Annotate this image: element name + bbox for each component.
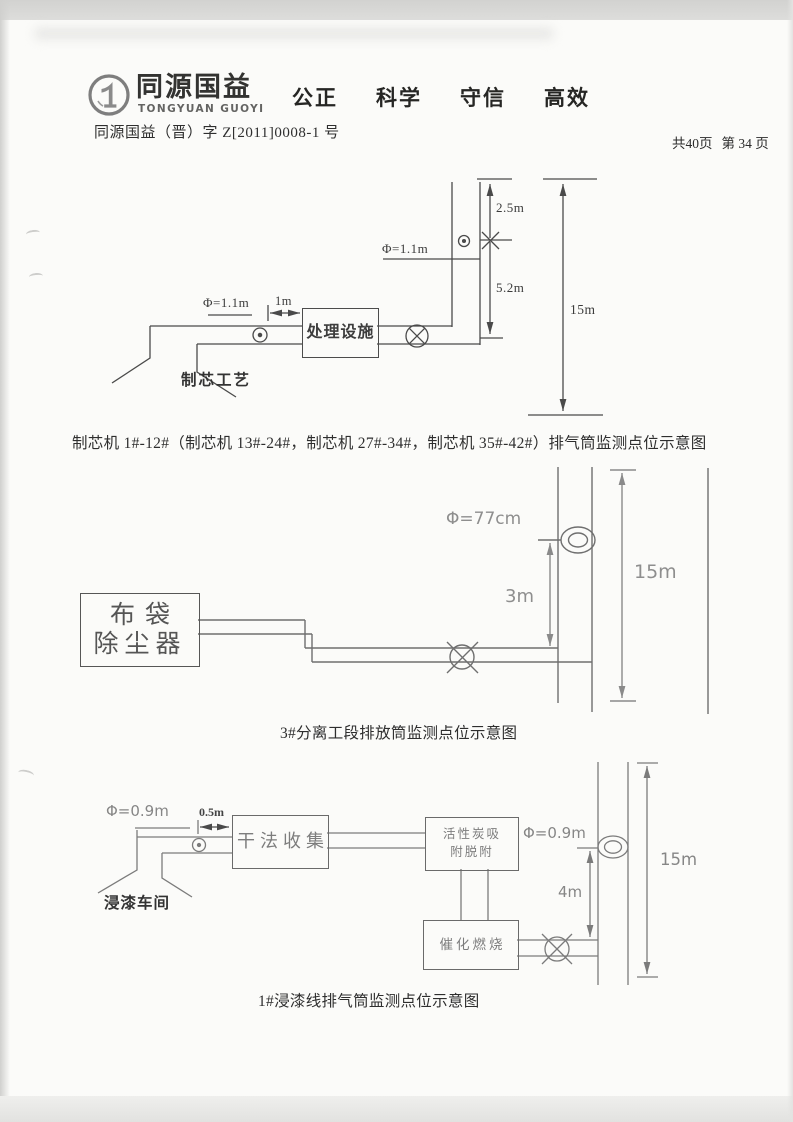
d3-source-hood [98,830,192,897]
dry-collection-box: 干法收集 [232,815,329,869]
d1-lower-height-label: 5.2m [496,281,524,295]
catalytic-combustion-label: 催化燃烧 [437,938,506,953]
treatment-facility-label: 处理设施 [306,324,374,342]
d2-lines [198,467,708,714]
d2-dimension-lines [550,470,636,701]
d1-stack-diameter-label: Φ=1.1m [382,242,428,256]
d1-source-label: 制芯工艺 [181,372,251,389]
d1-stack [452,182,480,345]
d3-stack-diameter-label: Φ=0.9m [523,825,586,842]
activated-carbon-box: 活性炭吸 附脱附 [425,817,519,871]
treatment-facility-box: 处理设施 [302,308,379,358]
d1-caption: 制芯机 1#-12#（制芯机 13#-24#，制芯机 27#-34#，制芯机 3… [72,431,707,453]
d2-stack [558,467,592,712]
d2-ducts [198,620,592,662]
sampling-port-icon [459,236,470,247]
d3-lines [98,762,658,985]
d3-inlet-diameter-label: Φ=0.9m [106,803,169,820]
monitoring-port-icon [561,527,595,553]
activated-carbon-label-line1: 活性炭吸 [443,828,501,842]
dry-collection-label: 干法收集 [232,832,329,852]
bag-filter-box: 布袋 除尘器 [80,593,200,667]
catalytic-combustion-box: 催化燃烧 [423,920,519,970]
d3-dimension-lines [577,763,658,977]
sampling-port-icon [193,839,206,852]
bag-filter-label-line2: 除尘器 [93,631,186,659]
sampling-port-icon [253,328,267,342]
d1-stack-height-label: 15m [570,303,596,318]
fan-icon [542,934,572,964]
d3-inlet-distance-label: 0.5m [199,806,224,819]
d2-port-height-label: 3m [505,587,534,607]
scanned-report-page: 同源国益 TONGYUAN GUOYI 公正 科学 守信 高效 同源国益（晋）字… [0,0,793,1122]
activated-carbon-label-line2: 附脱附 [450,846,494,860]
d3-stack-height-label: 15m [660,851,697,869]
d2-stack-diameter-label: Φ=77cm [446,510,521,529]
d2-stack-height-label: 15m [634,562,677,583]
d3-stack [598,762,628,985]
d3-caption: 1#浸漆线排气筒监测点位示意图 [258,989,480,1011]
bag-filter-label-line1: 布袋 [100,602,180,630]
fan-icon [447,642,478,673]
d1-inlet-distance-label: 1m [275,295,292,309]
d3-source-label: 浸漆车间 [104,895,170,912]
d3-port-height-label: 4m [558,884,582,901]
d1-upper-height-label: 2.5m [496,201,524,215]
monitoring-port-icon [598,836,628,858]
d3-ducts [137,833,598,956]
d2-caption: 3#分离工段排放筒监测点位示意图 [280,721,517,743]
d1-inlet-diameter-label: Φ=1.1m [203,296,249,310]
